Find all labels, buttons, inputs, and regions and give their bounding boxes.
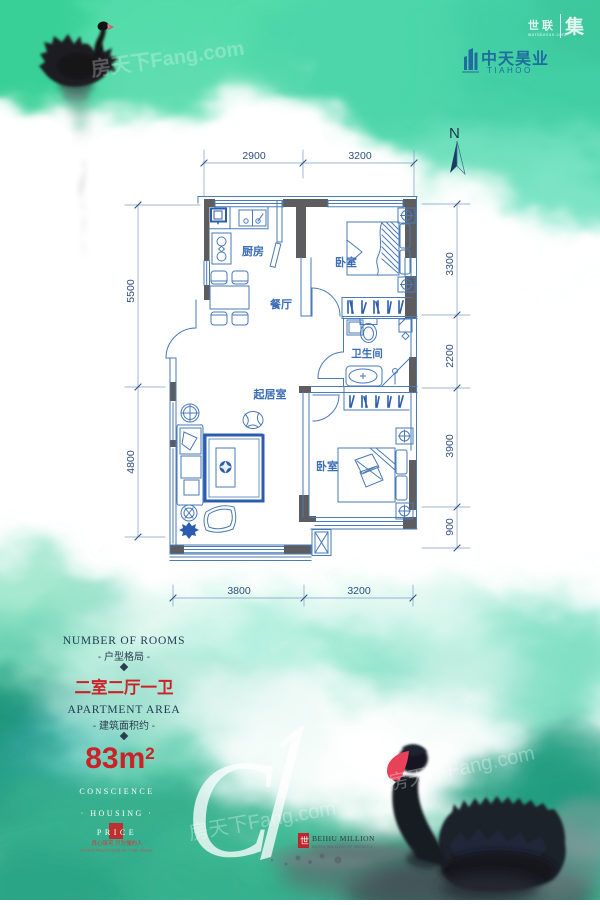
svg-text:N: N	[449, 125, 460, 142]
svg-text:3300: 3300	[444, 252, 456, 276]
svg-text:卧室: 卧室	[316, 459, 338, 473]
svg-text:- 建筑面积约 -: - 建筑面积约 -	[93, 719, 155, 732]
svg-text:3200: 3200	[347, 585, 371, 597]
svg-text:APARTMENT AREA: APARTMENT AREA	[67, 704, 180, 716]
svg-text:NUMBER OF ROOMS: NUMBER OF ROOMS	[63, 635, 186, 647]
svg-text:TIAHOO: TIAHOO	[487, 66, 533, 75]
svg-text:CONSCIENCE: CONSCIENCE	[79, 787, 154, 796]
svg-text:· HOUSING ·: · HOUSING ·	[81, 809, 154, 818]
svg-text:BEIHU MILLION: BEIHU MILLION	[312, 834, 375, 843]
svg-text:C: C	[186, 732, 273, 887]
svg-text:- 户型格局 -: - 户型格局 -	[98, 650, 150, 663]
svg-text:2900: 2900	[242, 150, 266, 162]
svg-text:900: 900	[444, 518, 456, 536]
svg-text:餐厅: 餐厅	[269, 297, 292, 311]
svg-text:卧室: 卧室	[335, 255, 357, 269]
svg-text:BEIHU MILLION OF WEALTH: BEIHU MILLION OF WEALTH	[312, 844, 372, 849]
svg-text:3900: 3900	[444, 434, 456, 458]
svg-text:良心筑宅 只为懂的人: 良心筑宅 只为懂的人	[91, 839, 143, 847]
svg-text:3800: 3800	[227, 585, 251, 597]
svg-text:二室二厅一卫: 二室二厅一卫	[75, 677, 174, 697]
svg-text:CONSTRUCTION IN THE SOUL: CONSTRUCTION IN THE SOUL	[81, 848, 154, 853]
svg-text:世: 世	[300, 835, 309, 846]
svg-text:2200: 2200	[444, 344, 456, 368]
svg-text:3200: 3200	[348, 150, 372, 162]
svg-text:PRICE: PRICE	[97, 828, 137, 837]
svg-text:5500: 5500	[125, 279, 137, 303]
svg-text:集: 集	[564, 15, 585, 38]
svg-text:83m2: 83m2	[85, 742, 155, 775]
svg-text:世联: 世联	[528, 18, 556, 32]
svg-text:厨房: 厨房	[242, 244, 264, 258]
svg-text:起居室: 起居室	[253, 387, 287, 401]
svg-text:4800: 4800	[125, 450, 137, 474]
svg-text:卫生间: 卫生间	[351, 347, 383, 360]
